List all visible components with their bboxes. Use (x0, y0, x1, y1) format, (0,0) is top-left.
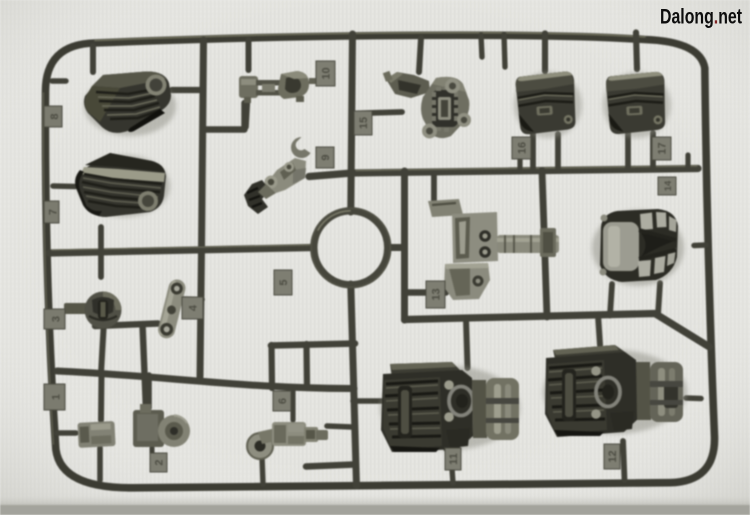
svg-text:Dalong.net: Dalong.net (660, 6, 742, 29)
